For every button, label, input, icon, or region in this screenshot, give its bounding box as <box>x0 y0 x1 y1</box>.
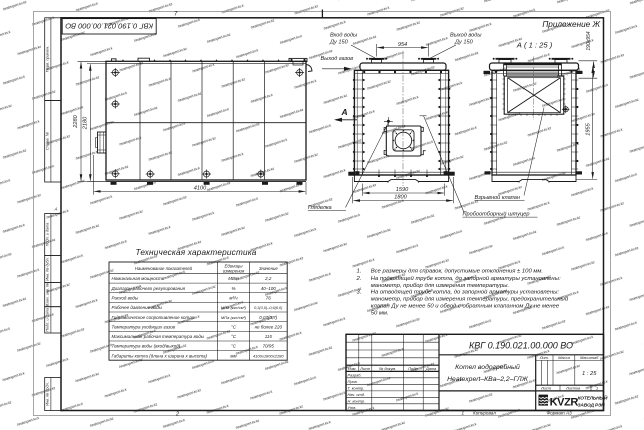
svg-text:Лист: Лист <box>359 366 371 371</box>
svg-text:°С: °С <box>231 344 237 349</box>
svg-text:Рабочее давление воды: Рабочее давление воды <box>112 305 163 310</box>
svg-text:954: 954 <box>398 42 407 48</box>
svg-text:Взрывной клапан: Взрывной клапан <box>475 194 520 201</box>
svg-text:Температура воды (вход/выход): Температура воды (вход/выход) <box>112 344 181 349</box>
svg-text:%: % <box>231 286 235 291</box>
svg-text:Вход воды: Вход воды <box>330 33 357 39</box>
svg-text:76: 76 <box>266 296 272 301</box>
svg-text:2: 2 <box>175 411 179 417</box>
svg-text:манометр, прибор для измерения: манометр, прибор для измерения температу… <box>371 296 569 303</box>
svg-text:2,2: 2,2 <box>264 276 272 281</box>
svg-text:Лист: Лист <box>540 386 552 391</box>
svg-text:измерения: измерения <box>223 268 245 273</box>
svg-text:не более 220: не более 220 <box>255 324 283 329</box>
svg-text:Изм.: Изм. <box>348 366 356 371</box>
svg-text:50 мм.: 50 мм. <box>371 310 389 316</box>
svg-text:Масса: Масса <box>558 355 570 360</box>
svg-text:Взам. инв. №: Взам. инв. № <box>46 283 50 306</box>
svg-text:Габариты котла (длина х ширина: Габариты котла (длина х ширина х высота) <box>112 353 208 358</box>
svg-text:Расход воды: Расход воды <box>112 296 139 301</box>
svg-text:°С: °С <box>231 324 237 329</box>
svg-text:Выход воды: Выход воды <box>450 33 481 39</box>
svg-text:м³/ч: м³/ч <box>229 296 238 301</box>
svg-text:0,3(3,0)–0,6(6,0): 0,3(3,0)–0,6(6,0) <box>254 306 283 310</box>
svg-text:Разраб.: Разраб. <box>348 373 362 378</box>
svg-text:МПа (кгс/см²): МПа (кгс/см²) <box>221 315 247 320</box>
svg-text:А: А <box>54 207 58 212</box>
svg-text:Гидравлическое сопротивление к: Гидравлическое сопротивление котла <box>112 315 195 320</box>
svg-text:На отводящей трубе котла, до з: На отводящей трубе котла, до запорной ар… <box>371 289 560 296</box>
svg-text:Температура уходящих газов: Температура уходящих газов <box>112 324 176 329</box>
svg-text:Пробоотборный штуцер: Пробоотборный штуцер <box>463 211 530 218</box>
svg-text:Техническая характеристика: Техническая характеристика <box>135 248 256 257</box>
svg-text:ЗАВОД РЭП: ЗАВОД РЭП <box>578 403 606 409</box>
svg-text:Справ. №: Справ. № <box>45 131 50 150</box>
svg-text:Т. контр.: Т. контр. <box>348 386 365 391</box>
svg-text:Инв. № дубл.: Инв. № дубл. <box>46 257 50 280</box>
svg-text:4100х1800х2280: 4100х1800х2280 <box>253 353 284 358</box>
svg-text:Утв.: Утв. <box>348 405 357 410</box>
svg-text:Котел водогрейный: Котел водогрейный <box>455 363 520 371</box>
svg-text:Перв. примен.: Перв. примен. <box>45 46 50 73</box>
svg-text:1.: 1. <box>357 268 362 274</box>
svg-text:Листов: Листов <box>565 386 580 391</box>
svg-text:Приложение Ж: Приложение Ж <box>542 20 600 29</box>
svg-text:А: А <box>341 107 348 117</box>
svg-text:А ( 1 : 25 ): А ( 1 : 25 ) <box>516 41 553 50</box>
svg-text:Наименование показателей: Наименование показателей <box>135 266 193 271</box>
svg-text:2180: 2180 <box>83 116 89 130</box>
svg-text:1: 1 <box>596 386 598 391</box>
svg-text:1: 1 <box>462 411 465 416</box>
svg-text:1590: 1590 <box>396 187 409 193</box>
svg-text:Подп. и дата: Подп. и дата <box>46 223 50 247</box>
svg-text:Копировал: Копировал <box>473 411 496 416</box>
svg-text:Диапазон рабочего регулировани: Диапазон рабочего регулирования <box>111 286 186 291</box>
svg-text:2.: 2. <box>356 276 362 282</box>
svg-text:Максимальная рабочая температу: Максимальная рабочая температура воды <box>112 334 205 339</box>
svg-text:3.: 3. <box>357 290 362 296</box>
svg-text:На подводящей трубе котла, до: На подводящей трубе котла, до запорной а… <box>371 275 561 282</box>
svg-text:Пров.: Пров. <box>348 379 358 384</box>
svg-text:мм: мм <box>230 353 236 358</box>
svg-text:KVZR: KVZR <box>550 396 579 408</box>
svg-text:Лит.: Лит. <box>539 355 549 360</box>
svg-text:Выход газов: Выход газов <box>321 56 354 62</box>
svg-text:115: 115 <box>265 334 273 339</box>
svg-text:Дата: Дата <box>425 366 437 371</box>
svg-text:Формат А3: Формат А3 <box>547 411 573 416</box>
svg-text:МВт: МВт <box>228 276 239 281</box>
svg-text:Н. контр.: Н. контр. <box>348 399 366 404</box>
svg-text:Подп. и дата: Подп. и дата <box>46 308 50 332</box>
svg-text:Все размеры для справок, допус: Все размеры для справок, допустимые откл… <box>371 268 543 274</box>
svg-text:1 : 25: 1 : 25 <box>582 371 597 377</box>
svg-text:Ду 150: Ду 150 <box>454 40 474 46</box>
svg-text:190х954: 190х954 <box>586 31 592 50</box>
svg-text:манометр, прибор для измерения: манометр, прибор для измерения температу… <box>371 283 509 289</box>
svg-text:2280: 2280 <box>73 114 79 128</box>
svg-text:№ докум.: № докум. <box>379 366 396 371</box>
svg-text:Гляделка: Гляделка <box>308 205 332 211</box>
svg-text:Ду 150: Ду 150 <box>329 40 349 46</box>
svg-text:°С: °С <box>231 334 237 339</box>
svg-text:КВГ 0.190.021.00.000 ВО: КВГ 0.190.021.00.000 ВО <box>469 340 573 350</box>
svg-text:клапан Ду не менее 50 и обвод: клапан Ду не менее 50 и обвод с обратным… <box>371 303 560 309</box>
svg-text:Подп.: Подп. <box>408 366 418 371</box>
svg-text:70/95: 70/95 <box>263 344 275 349</box>
svg-text:МПа (кгс/см²): МПа (кгс/см²) <box>221 305 247 310</box>
svg-text:Масштаб: Масштаб <box>580 355 599 360</box>
svg-text:1800: 1800 <box>394 195 407 201</box>
svg-text:40–100: 40–100 <box>261 286 277 291</box>
svg-text:Инв. № подл.: Инв. № подл. <box>46 382 50 406</box>
svg-text:Heatexpert–КВа–2,2–ГЛЖ: Heatexpert–КВа–2,2–ГЛЖ <box>447 376 528 383</box>
svg-text:0,07(0,7): 0,07(0,7) <box>259 315 278 320</box>
svg-text:Номинальная мощность: Номинальная мощность <box>112 276 165 281</box>
svg-text:4100: 4100 <box>194 186 207 192</box>
svg-text:Нач. отд.: Нач. отд. <box>348 392 365 397</box>
svg-text:Значение: Значение <box>259 266 278 271</box>
svg-text:1955: 1955 <box>586 122 592 135</box>
svg-text:КВГ 0.190.021.00.000 ВО: КВГ 0.190.021.00.000 ВО <box>65 21 153 30</box>
